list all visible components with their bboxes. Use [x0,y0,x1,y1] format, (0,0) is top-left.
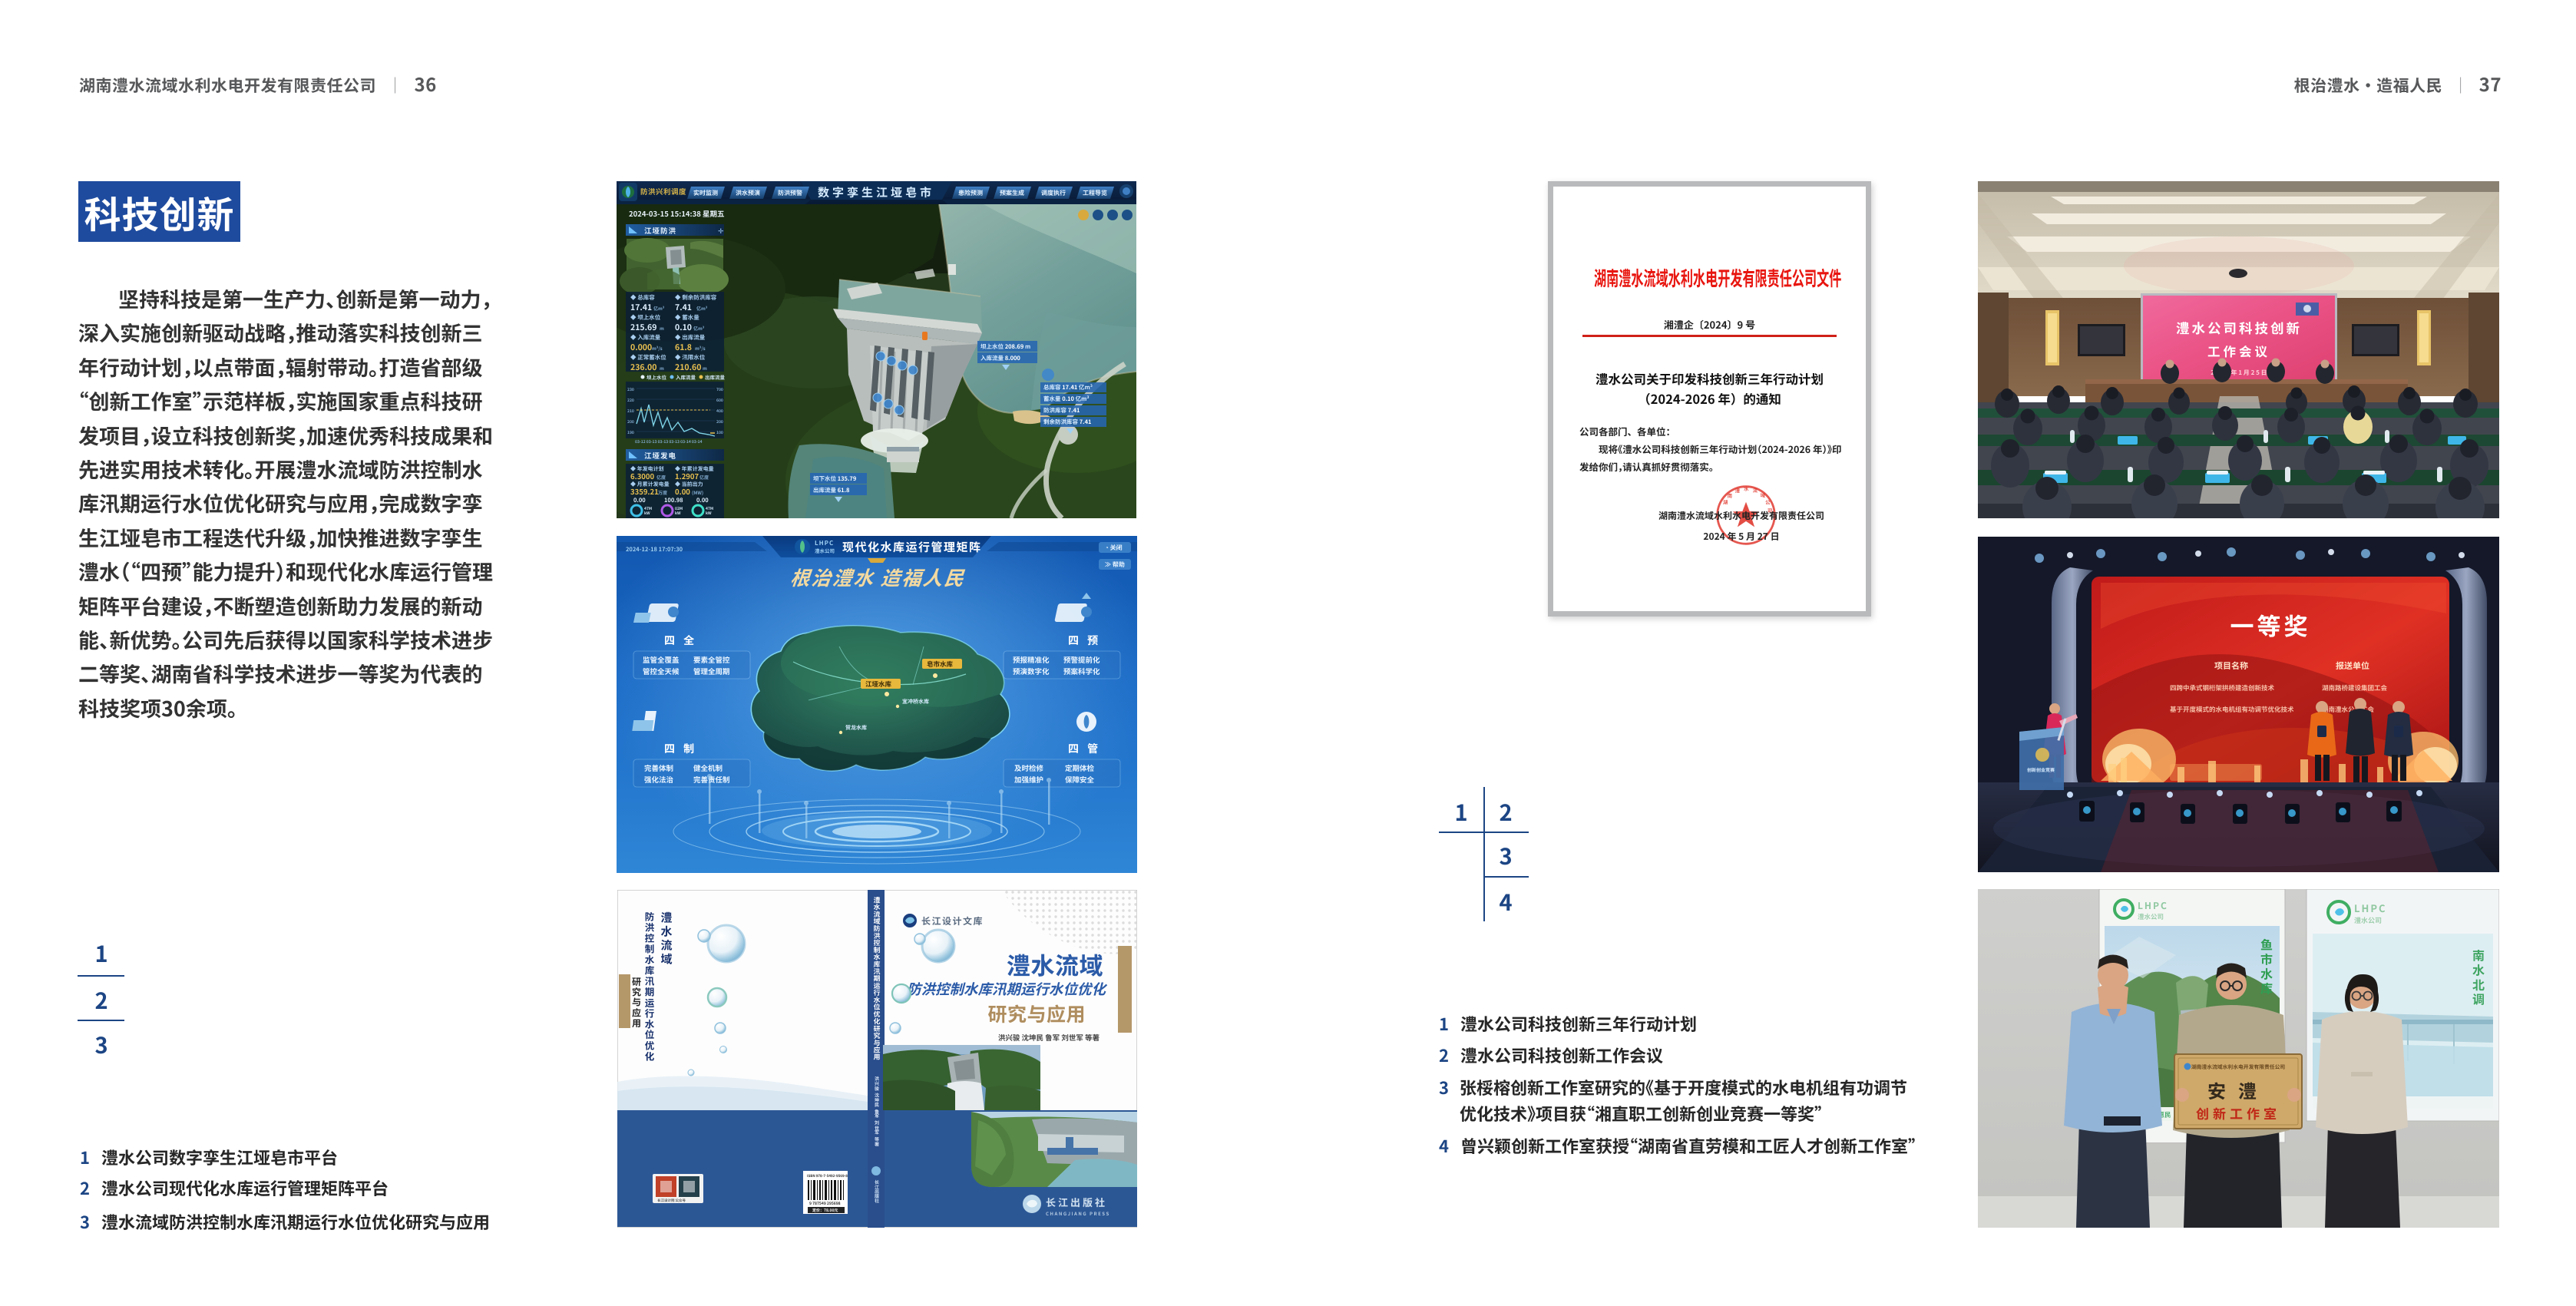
svg-text:坝上水位 208.69 m: 坝上水位 208.69 m [980,342,1030,351]
svg-text:◆ 蓄水量: ◆ 蓄水量 [675,313,699,322]
svg-text:一等奖: 一等奖 [2230,607,2311,642]
svg-text:澧水公司: 澧水公司 [2138,912,2164,921]
svg-text:根治澧水 造福人民: 根治澧水 造福人民 [789,563,967,591]
svg-text:防洪兴利调度: 防洪兴利调度 [640,186,686,197]
svg-text:坝下水位 135.79: 坝下水位 135.79 [813,474,857,483]
svg-text:2024-03-15 15:14:38 星期五: 2024-03-15 15:14:38 星期五 [629,208,725,219]
svg-text:皂市水库: 皂市水库 [927,660,954,669]
svg-text:创新工作室: 创新工作室 [2196,1103,2280,1122]
svg-text:220: 220 [627,398,634,403]
svg-text:入库流量 8.000: 入库流量 8.000 [980,354,1020,362]
svg-text:◆ 入库流量: ◆ 入库流量 [630,333,661,342]
svg-text:600: 600 [716,398,723,403]
svg-text:LHPC: LHPC [2354,901,2387,915]
svg-text:域: 域 [1761,491,1766,498]
svg-text:剩余防洪库容 7.41: 剩余防洪库容 7.41 [1043,418,1091,426]
svg-text:200: 200 [716,419,723,425]
svg-text:及时检修: 及时检修 [1014,762,1044,773]
svg-text:湖南路桥建设集团工会: 湖南路桥建设集团工会 [2322,683,2388,693]
svg-text:100.98: 100.98 [664,496,683,504]
svg-text:预案生成: 预案生成 [1000,189,1024,197]
svg-text:现代化水库运行管理矩阵: 现代化水库运行管理矩阵 [842,539,982,555]
svg-text:工程导览: 工程导览 [1083,189,1107,197]
svg-text:预报精准化: 预报精准化 [1013,654,1050,665]
svg-text:m: m [703,365,707,372]
svg-text:洪兴骏 沈坤民 鲁军 刘世军 等著: 洪兴骏 沈坤民 鲁军 刘世军 等著 [998,1032,1100,1043]
svg-text:100: 100 [716,430,723,435]
svg-text:宜冲桥水库: 宜冲桥水库 [902,698,929,706]
svg-text:四 管: 四 管 [1068,741,1101,756]
svg-text:400: 400 [716,408,723,414]
svg-text:✛: ✛ [718,226,724,236]
svg-text:kW: kW [675,511,681,516]
svg-text:实时监测: 实时监测 [693,189,718,197]
svg-text:0.00: 0.00 [633,496,646,504]
svg-text:定价：78.00元: 定价：78.00元 [812,1208,838,1213]
svg-text:236.00: 236.00 [630,362,656,373]
svg-text:◆ 坝上水位: ◆ 坝上水位 [630,313,661,322]
svg-text:研究与应用: 研究与应用 [987,1000,1086,1027]
svg-text:◆ 总库容: ◆ 总库容 [630,293,655,302]
svg-text:7.41: 7.41 [675,302,692,313]
svg-text:澧水流域: 澧水流域 [1007,947,1103,981]
svg-text:澧: 澧 [1735,488,1741,494]
svg-text:长江出版社: 长江出版社 [874,1179,881,1203]
svg-text:6.3000: 6.3000 [630,471,655,481]
svg-text:患险预测: 患险预测 [958,189,983,197]
svg-text:总库容 17.41 亿m³: 总库容 17.41 亿m³ [1043,383,1093,392]
svg-text:m: m [660,325,664,332]
svg-text:创新创业竞赛: 创新创业竞赛 [2027,766,2055,773]
svg-text:澧水公司科技创新: 澧水公司科技创新 [2176,319,2302,338]
svg-text:工作会议: 工作会议 [2207,342,2270,360]
svg-text:预演数字化: 预演数字化 [1013,666,1050,676]
svg-text:◆ 出库流量: ◆ 出库流量 [675,333,706,342]
svg-text:出库流量: 出库流量 [705,373,726,381]
svg-text:亿度: 亿度 [656,474,666,481]
svg-text:万度: 万度 [658,489,667,496]
svg-text:230: 230 [627,387,634,392]
svg-text:江垭发电: 江垭发电 [644,450,676,461]
svg-text:m: m [660,365,664,372]
svg-text:江垭防洪: 江垭防洪 [644,225,676,236]
svg-text:m³/s: m³/s [652,345,663,352]
svg-text:210: 210 [627,408,634,414]
svg-text:安澧: 安澧 [2207,1076,2269,1103]
svg-text:调度执行: 调度执行 [1041,189,1066,197]
svg-text:加强维护: 加强维护 [1014,774,1043,785]
svg-text:报送单位: 报送单位 [2336,660,2369,672]
svg-text:流: 流 [1753,487,1758,494]
svg-text:预案科学化: 预案科学化 [1063,666,1100,676]
svg-text:LHPC: LHPC [2138,899,2168,912]
svg-text:监管全覆盖: 监管全覆盖 [643,654,680,665]
svg-text:◔ 关闭: ◔ 关闭 [1105,544,1123,552]
svg-text:3359.21: 3359.21 [630,486,659,497]
svg-text:亿m³: 亿m³ [693,325,705,332]
svg-text:亿m³: 亿m³ [653,305,665,312]
svg-text:◆ 剩余防洪库容: ◆ 剩余防洪库容 [675,293,717,302]
svg-text:湖: 湖 [1723,499,1728,506]
svg-text:管控全天候: 管控全天候 [643,666,680,676]
svg-text:190: 190 [627,430,634,435]
svg-text:健全机制: 健全机制 [693,762,723,773]
svg-text:防洪库容 7.41: 防洪库容 7.41 [1043,406,1080,415]
svg-text:南: 南 [1728,492,1733,499]
svg-text:四 全: 四 全 [664,633,697,648]
svg-text:防洪控制水库汛期运行水位优化: 防洪控制水库汛期运行水位优化 [907,979,1108,999]
svg-text:南水北调: 南水北调 [2469,949,2488,1007]
svg-text:坝上水位: 坝上水位 [646,373,667,381]
svg-text:保障安全: 保障安全 [1065,774,1095,785]
svg-text:长江设计文库: 长江设计文库 [921,914,984,927]
svg-text:项目名称: 项目名称 [2214,660,2248,672]
svg-text:700: 700 [716,387,723,392]
svg-text:预警提前化: 预警提前化 [1063,654,1100,665]
svg-text:防洪控制水库汛期运行水位优化: 防洪控制水库汛期运行水位优化 [643,911,657,1062]
svg-text:亿度: 亿度 [699,474,709,481]
svg-text:公: 公 [1765,499,1771,506]
svg-text:研究与应用: 研究与应用 [630,977,643,1029]
svg-text:防洪预警: 防洪预警 [778,189,802,197]
svg-text:长江设计院 公众号: 长江设计院 公众号 [657,1199,686,1203]
svg-text:鱼市水库: 鱼市水库 [2257,938,2276,997]
svg-text:数字孪生江垭皂市: 数字孪生江垭皂市 [818,184,934,200]
svg-text:◆ 正常蓄水位: ◆ 正常蓄水位 [630,353,666,362]
svg-text:基于开度模式的水电机组有功调节优化技术: 基于开度模式的水电机组有功调节优化技术 [2170,705,2294,714]
svg-text:澧水公司: 澧水公司 [815,547,835,554]
svg-text:四跨中承式钢桁架拱桥建造创新技术: 四跨中承式钢桁架拱桥建造创新技术 [2170,683,2275,693]
svg-text:澧水流域: 澧水流域 [659,911,675,967]
svg-text:亿m³: 亿m³ [696,305,708,312]
svg-text:210.60: 210.60 [675,362,701,373]
svg-text:1.2907: 1.2907 [675,471,699,481]
svg-text:≫ 帮助: ≫ 帮助 [1105,560,1125,569]
svg-text:定期体检: 定期体检 [1065,762,1095,773]
svg-text:61.8: 61.8 [675,342,692,353]
svg-text:管理全周期: 管理全周期 [693,666,730,676]
svg-text:0.00: 0.00 [696,496,709,504]
svg-text:强化法治: 强化法治 [644,774,674,785]
svg-text:0.000: 0.000 [630,342,652,353]
svg-text:ISBN 978-7-5492-9569-8: ISBN 978-7-5492-9569-8 [807,1174,848,1179]
svg-text:200: 200 [627,419,634,425]
svg-text:四 制: 四 制 [664,741,697,756]
svg-text:湖南澧水流域水利水电开发有限责任公司: 湖南澧水流域水利水电开发有限责任公司 [2191,1063,2286,1070]
svg-text:◆ 汛限水位: ◆ 汛限水位 [675,353,706,362]
svg-text:贺龙水库: 贺龙水库 [845,724,867,732]
svg-text:蓄水量 0.10 亿m³: 蓄水量 0.10 亿m³ [1043,395,1090,403]
svg-text:长江出版社: 长江出版社 [1046,1195,1107,1209]
svg-text:215.69: 215.69 [630,322,656,333]
svg-text:m³/s: m³/s [695,345,706,352]
svg-text:kW: kW [644,511,650,516]
svg-text:03-12 03-13 03-13 03-13 03-14: 03-12 03-13 03-13 03-13 03-14 03-14 [635,439,703,445]
svg-text:CHANGJIANG PRESS: CHANGJIANG PRESS [1046,1210,1110,1217]
svg-text:9 787549 295698: 9 787549 295698 [809,1201,841,1206]
svg-text:0.00: 0.00 [675,486,690,497]
svg-text:(MW): (MW) [692,489,703,496]
svg-text:水: 水 [1744,485,1749,492]
svg-text:四 预: 四 预 [1068,633,1101,648]
svg-text:澧水公司: 澧水公司 [2354,915,2382,925]
svg-text:江垭水库: 江垭水库 [865,679,892,689]
svg-text:洪兴骏 沈坤民 鲁军 刘世军 等著: 洪兴骏 沈坤民 鲁军 刘世军 等著 [874,1076,881,1147]
svg-text:17.41: 17.41 [630,302,652,313]
svg-text:澧水流域防洪控制水库汛期运行水位优化研究与应用: 澧水流域防洪控制水库汛期运行水位优化研究与应用 [872,896,882,1060]
svg-text:洪水预演: 洪水预演 [736,189,760,197]
svg-text:2024-12-18 17:07:30: 2024-12-18 17:07:30 [626,545,683,554]
svg-text:要素全管控: 要素全管控 [693,654,730,665]
svg-text:入库流量: 入库流量 [676,373,696,381]
svg-text:kW: kW [706,511,712,516]
svg-text:出库流量 61.8: 出库流量 61.8 [813,486,850,494]
svg-text:完善体制: 完善体制 [644,762,673,773]
svg-text:0.10: 0.10 [675,322,692,333]
